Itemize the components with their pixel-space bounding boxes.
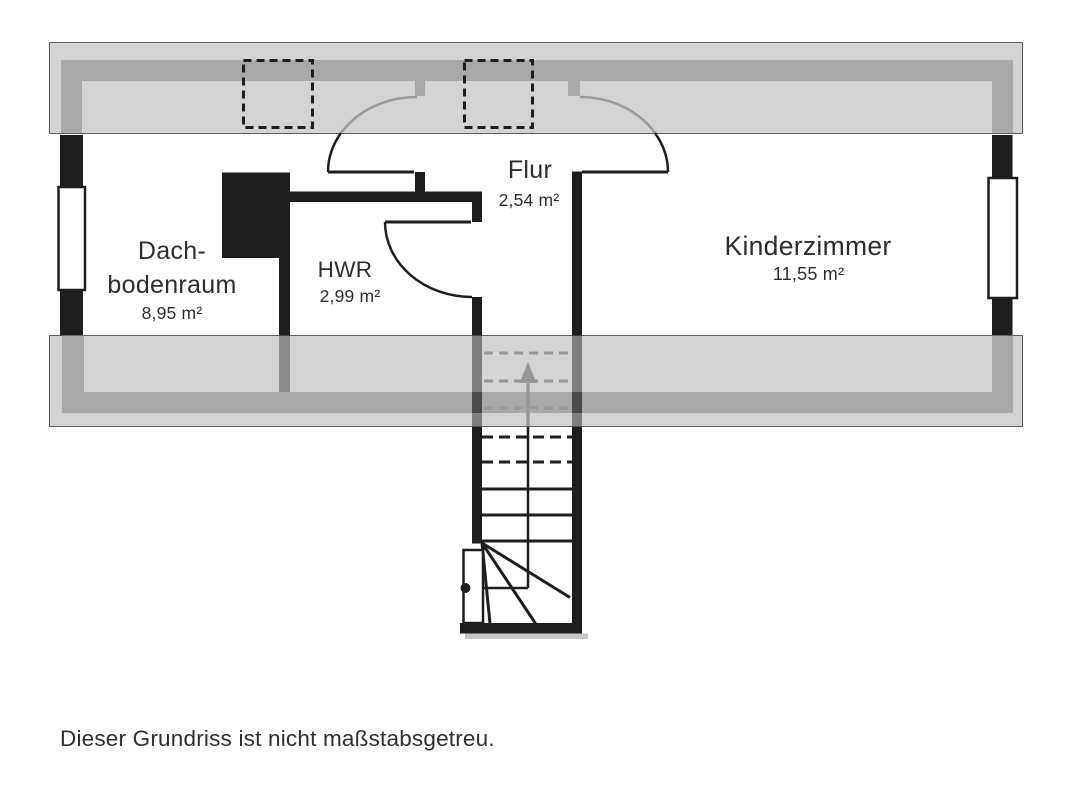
floorplan-page: Dach- bodenraum 8,95 m² HWR 2,99 m² Flur…: [0, 0, 1073, 799]
room-area-flur: 2,54 m²: [499, 190, 560, 210]
wall-dachboden-hwr: [279, 258, 290, 336]
hwr-wall-muted: [279, 336, 290, 392]
roof-zone-top-stripe-right: [992, 60, 1013, 133]
roof-zone-top: [50, 43, 1023, 134]
window-right: [989, 178, 1018, 298]
exterior-wall-left-upper: [60, 135, 83, 188]
window-left: [59, 187, 86, 290]
exterior-wall-left-lower: [60, 290, 83, 336]
door-swing-arc: [385, 222, 472, 297]
stair-wall-right: [572, 427, 582, 634]
room-label-flur: Flur: [508, 156, 552, 184]
stair-wall-left-muted-dark: [472, 392, 482, 413]
door-jamb-tab-right: [568, 81, 580, 96]
stair-wall-shadow: [465, 634, 588, 640]
door-swing-arc: [655, 133, 668, 172]
room-area-hwr: 2,99 m²: [320, 286, 381, 306]
staircase: [460, 427, 588, 640]
room-label-kinderzimmer: Kinderzimmer: [724, 231, 891, 261]
wall-flur-kinderzimmer: [572, 172, 582, 336]
roof-zone-bottom-stripe-left: [62, 336, 84, 414]
exterior-wall-right-lower: [992, 298, 1013, 336]
roof-zone-bottom-stripe: [62, 392, 1013, 413]
wall-stub-hwr-door-lower: [472, 297, 482, 336]
scale-disclaimer-caption: Dieser Grundriss ist nicht maßstabsgetre…: [60, 726, 495, 752]
room-label-dachbodenraum-line1: Dach-: [138, 237, 206, 265]
winder-tread: [482, 543, 570, 598]
door-jamb-tab-left: [415, 81, 425, 96]
room-area-kinderzimmer: 11,55 m²: [773, 264, 844, 284]
stair-wall-right-muted-dark: [572, 392, 582, 413]
room-label-dachbodenraum-line2: bodenraum: [107, 271, 236, 299]
stair-newel-post-dot: [461, 583, 471, 593]
wall-stub-flur-door: [415, 172, 425, 192]
door-hwr: [385, 222, 472, 297]
stair-winder-treads: [482, 543, 570, 624]
roof-zone-top-stripe-left: [61, 60, 82, 133]
exterior-wall-right-upper: [992, 135, 1013, 179]
room-label-hwr: HWR: [318, 257, 373, 282]
chimney-block: [222, 173, 290, 259]
stair-wall-bottom: [460, 623, 582, 634]
wall-stub-hwr-door-upper: [472, 202, 482, 222]
wall-hwr-top: [290, 192, 482, 203]
door-swing-arc: [328, 133, 341, 172]
floorplan-drawing: Dach- bodenraum 8,95 m² HWR 2,99 m² Flur…: [0, 0, 1073, 799]
roof-zone-top-stripe: [61, 60, 1013, 81]
roof-zone-bottom-stripe-right: [992, 336, 1013, 414]
room-area-dachbodenraum: 8,95 m²: [142, 303, 203, 323]
roof-zone-top-area: [50, 43, 1023, 134]
stair-wall-left: [472, 427, 482, 544]
